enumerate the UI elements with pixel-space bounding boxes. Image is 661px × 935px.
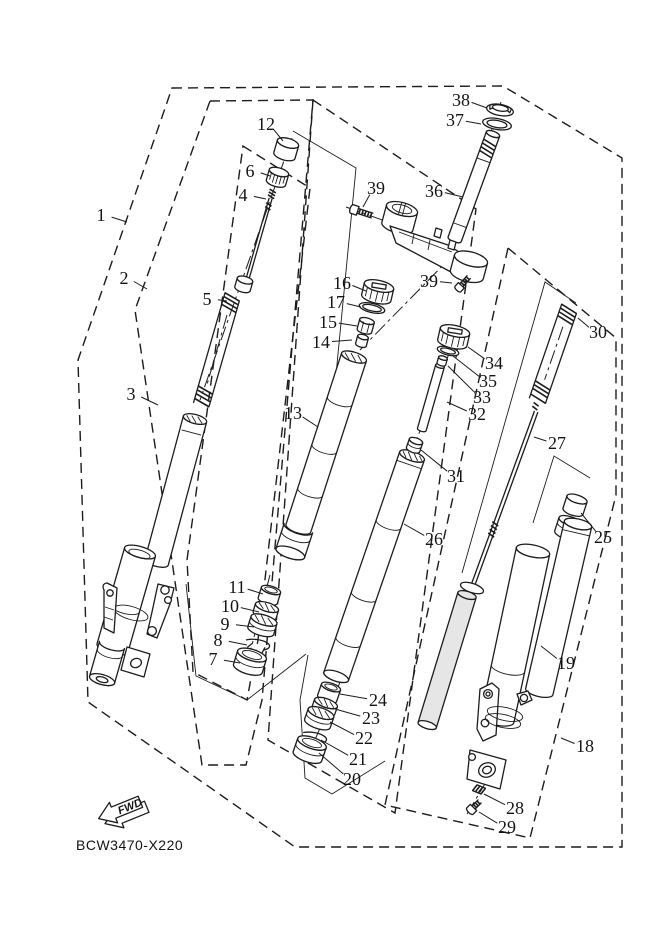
callout-15-label: 15 [319,312,337,332]
part-14-bush [355,333,369,348]
callout-3-label: 3 [127,384,136,404]
callout-38-leader [472,102,488,108]
callout-36-label: 36 [425,181,443,201]
callout-39-label: 39 [420,271,438,291]
callout-27-label: 27 [548,433,566,453]
protector-hole-top-inner [486,692,490,696]
callout-13-label: 13 [284,403,302,423]
callout-8-leader [229,641,247,645]
callout-24-label: 24 [369,690,387,710]
part-38-cap-nut [486,102,515,118]
fork-exploded-diagram: 1234567891011121314151617181920212223242… [0,0,661,935]
caliper-arm-hole [148,627,157,636]
callout-1-label: 1 [97,205,106,225]
parts-diagram-page: 1234567891011121314151617181920212223242… [0,0,661,935]
part-26-cylinder [322,447,426,685]
callout-30-leader [578,318,589,327]
callout-1-leader [112,217,127,222]
callout-4-label: 4 [239,185,248,205]
callout-28-label: 28 [506,798,524,818]
callout-30-label: 30 [589,322,607,342]
callout-37-leader [466,121,481,124]
drawing-code: BCW3470-X220 [76,837,183,853]
reflector-bracket-hole [107,590,113,596]
callout-26-label: 26 [425,529,443,549]
callout-25-label: 25 [594,527,612,547]
callout-14-leader [332,340,352,342]
callout-18-label: 18 [576,736,594,756]
callout-2-label: 2 [120,268,129,288]
callout-19-label: 19 [557,653,575,673]
group-2-outline [135,100,313,765]
callout-23-leader [335,709,360,716]
callout-14-label: 14 [312,332,330,352]
callout-18-leader [561,738,575,744]
part-5-spring [194,293,241,407]
callout-21-label: 21 [349,749,367,769]
caliper-bracket-hole-bottom [165,597,172,604]
right-axle-ear-hole [469,754,476,761]
callout-15-leader [339,323,357,326]
clamp-tab-2 [448,240,456,250]
callout-13-leader [303,417,318,427]
part-25-bush-upper [562,492,588,518]
callout-22-label: 22 [355,728,373,748]
fwd-arrow: FWD [95,790,151,835]
caliper-bracket-hole-top [161,586,169,594]
part-20-dust-seal [291,733,328,767]
callout-37-label: 37 [446,110,464,130]
callout-20-label: 20 [343,769,361,789]
callout-17-label: 17 [327,292,345,312]
callout-16-label: 16 [333,273,351,293]
callout-5-label: 5 [203,289,212,309]
part-3-inner-tube [144,412,208,570]
damper-cylinder [417,589,477,731]
callout-23-label: 23 [362,708,380,728]
part-32-rod [417,363,445,433]
callout-35-label: 35 [479,371,497,391]
callout-12-label: 12 [257,114,275,134]
callout-11-label: 11 [228,577,245,597]
clamp-tab-1 [434,228,442,238]
callout-28-leader [484,794,505,805]
part-4-rod [244,189,276,279]
callout-26-leader [404,524,424,535]
callout-32-label: 32 [468,404,486,424]
part-rod-seat [234,274,254,294]
callout-10-label: 10 [221,596,239,616]
callout-31-leader [421,450,447,471]
part-15-nut [356,316,375,335]
bracket-left-seal-group [186,584,306,700]
callout-39-label: 39 [367,178,385,198]
callout-34-leader [468,347,485,359]
part-6-cap-bolt [265,165,289,189]
callout-7-label: 7 [209,649,218,669]
callout-39-leader [440,282,452,283]
right-fork-column [417,304,593,815]
left-seal-stack [232,583,282,678]
right-ear-hole [520,694,527,701]
callout-36-leader [445,193,463,197]
callout-22-leader [330,722,354,735]
callout-6-label: 6 [246,161,255,181]
part-37-washer [482,116,512,132]
callout-3-leader [141,397,158,405]
callout-9-label: 9 [221,614,230,634]
part-17-oring-inner [362,303,382,313]
part-7-dust-seal [232,645,268,678]
callout-24-leader [340,694,367,699]
callout-4-leader [254,196,266,199]
callout-35-leader [453,356,479,376]
callout-31-label: 31 [447,466,465,486]
part-33-nut [436,355,447,367]
callout-29-leader [479,812,497,823]
callout-32-leader [447,402,467,411]
callout-5-leader [218,300,227,301]
callout-38-label: 38 [452,90,470,110]
callout-27-leader [534,437,546,441]
callout-34-label: 34 [485,353,503,373]
part-12-cap [273,136,300,163]
protector-hole-bottom [481,719,489,727]
part-39-bolt-left [349,204,374,220]
callout-29-label: 29 [498,817,516,837]
